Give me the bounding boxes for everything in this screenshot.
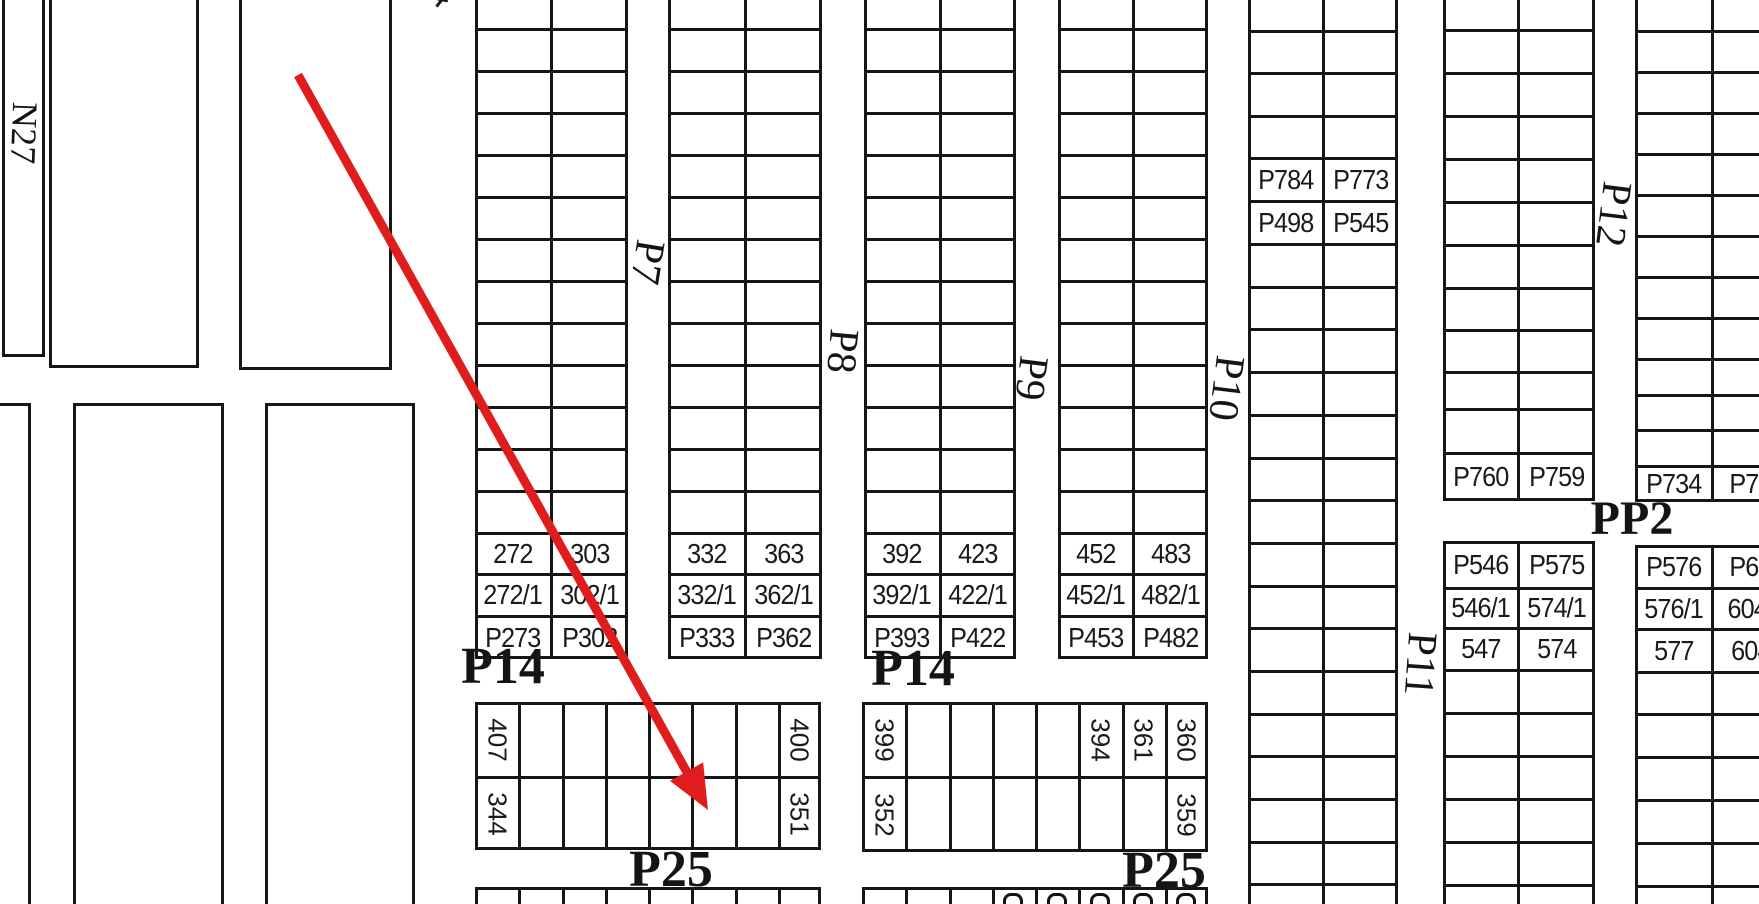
red-arrow-annotation bbox=[0, 0, 1759, 904]
red-arrow-shaft bbox=[298, 75, 689, 777]
plot-map: N27 P7 P8 P9 P10 P11 P12 P14 P14 P25 P25… bbox=[0, 0, 1759, 904]
